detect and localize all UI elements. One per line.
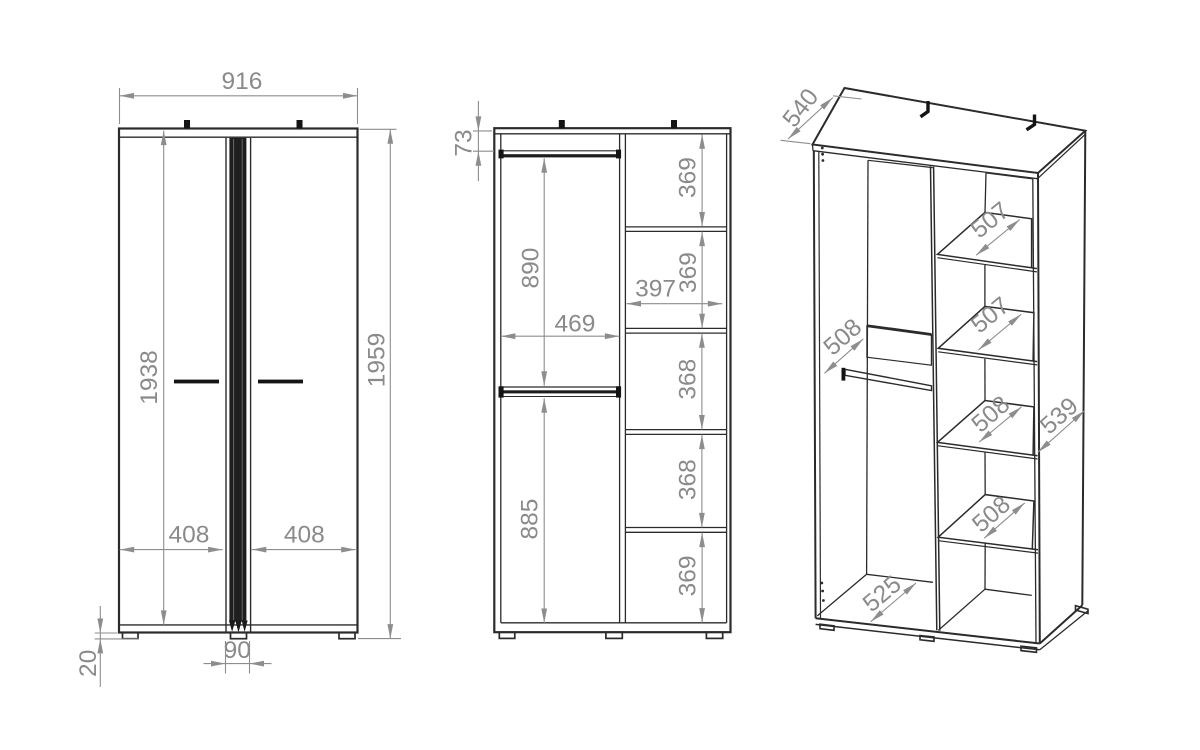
svg-text:540: 540: [778, 84, 824, 133]
svg-text:369: 369: [675, 157, 702, 198]
svg-text:73: 73: [451, 129, 478, 156]
svg-text:20: 20: [75, 650, 102, 677]
svg-text:885: 885: [517, 499, 544, 540]
svg-text:408: 408: [169, 522, 210, 549]
svg-text:368: 368: [674, 459, 701, 500]
svg-text:397: 397: [635, 276, 676, 303]
svg-text:916: 916: [222, 68, 263, 95]
svg-text:368: 368: [674, 359, 701, 400]
svg-text:469: 469: [554, 311, 595, 338]
svg-text:369: 369: [675, 555, 702, 596]
svg-text:1959: 1959: [363, 333, 390, 388]
svg-text:890: 890: [517, 248, 544, 289]
svg-text:539: 539: [1035, 393, 1083, 440]
svg-text:369: 369: [675, 252, 702, 293]
svg-text:90: 90: [224, 637, 251, 664]
svg-text:508: 508: [819, 314, 868, 361]
svg-text:1938: 1938: [136, 350, 163, 405]
svg-text:408: 408: [284, 522, 325, 549]
